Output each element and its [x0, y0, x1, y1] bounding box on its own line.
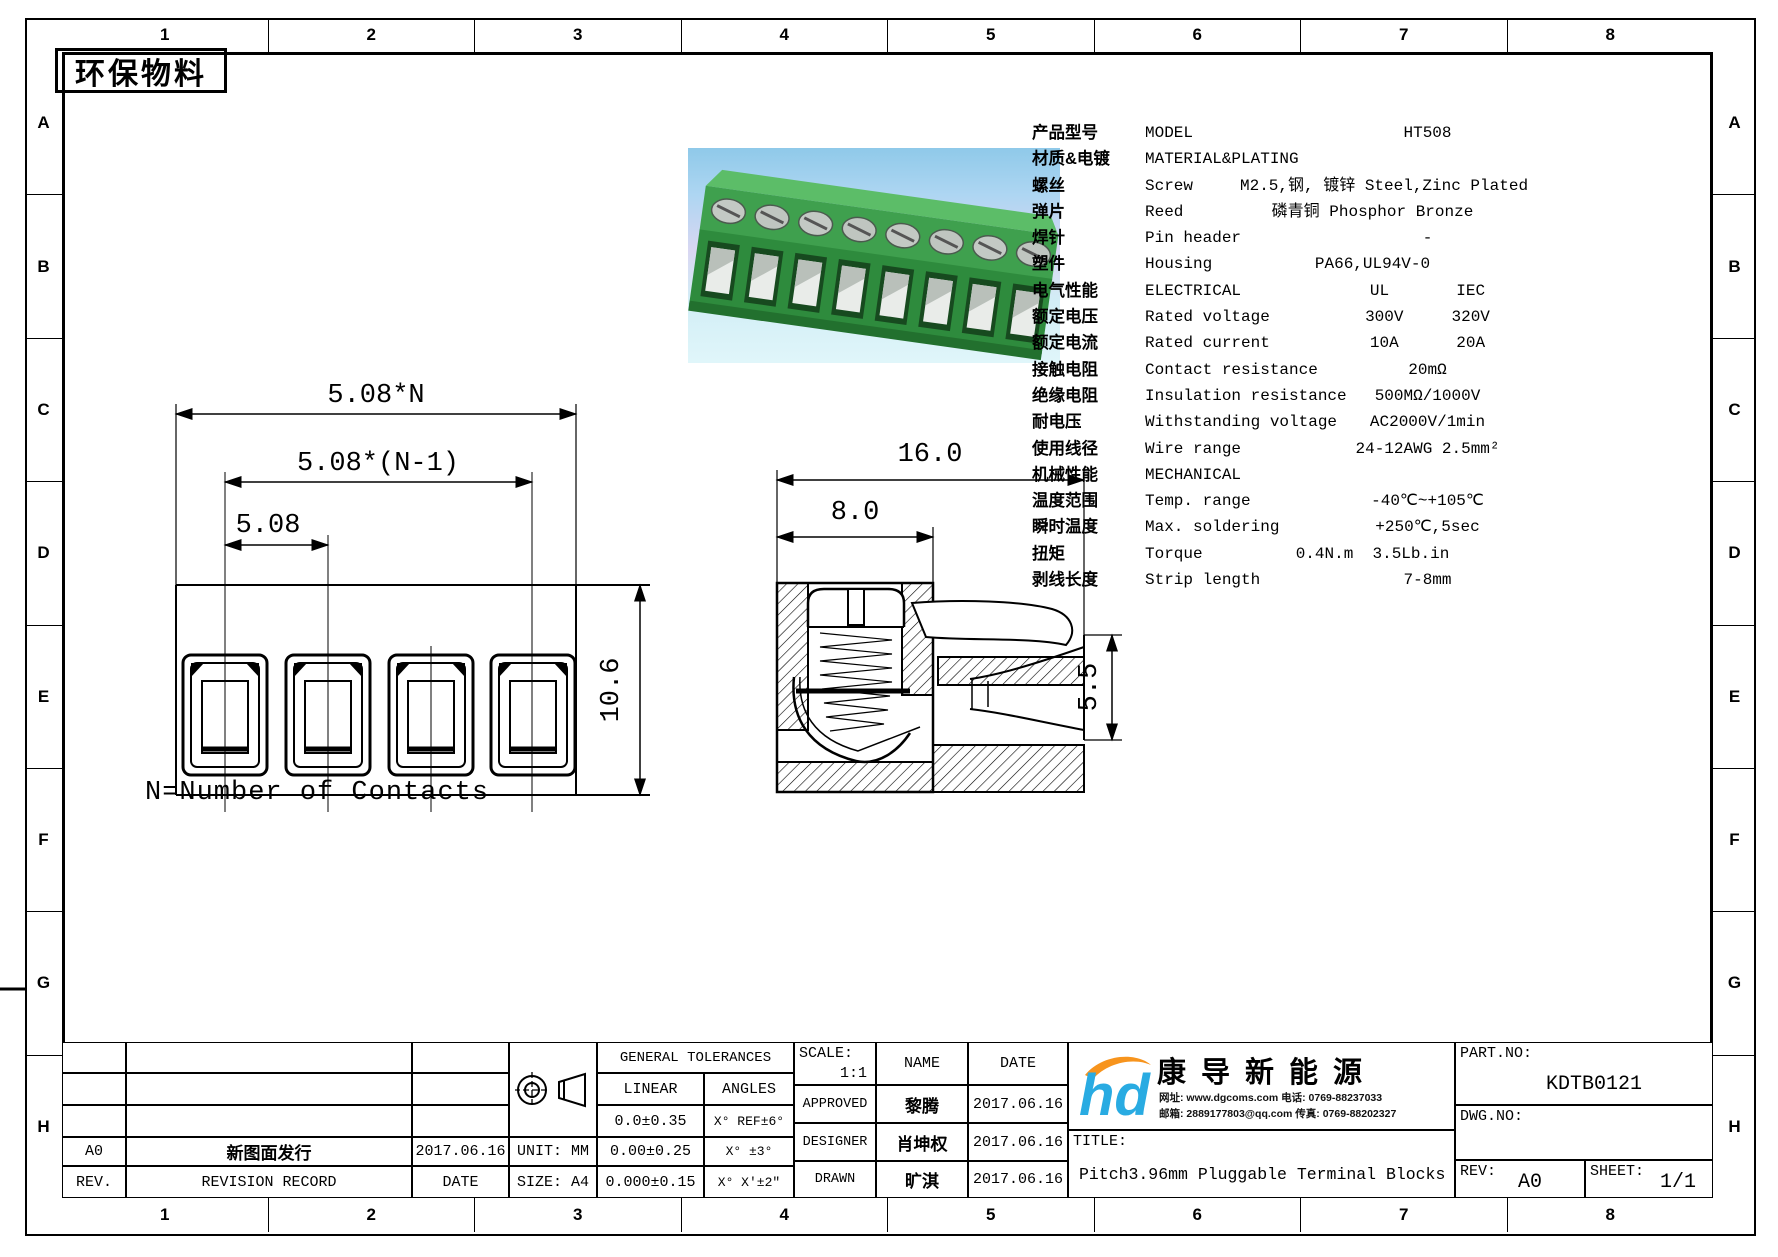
zone-band-left: ABCDEFGH: [25, 52, 62, 1198]
spec-label-cn: 额定电压: [1032, 304, 1145, 330]
tol-linear-3: 0.000±0.15: [597, 1166, 704, 1198]
projection-symbol-cell: [509, 1042, 597, 1137]
spec-label-en: ELECTRICAL: [1145, 278, 1350, 304]
zone-letter: F: [1713, 769, 1756, 912]
company-contact-line2: 邮箱: 2889177803@qq.com 传真: 0769-88202327: [1159, 1106, 1396, 1121]
projection-symbol-icon: [515, 1070, 591, 1110]
drawing-section-view: 16.0 8.0 5.5: [760, 395, 1140, 805]
spec-label-en: MECHANICAL: [1145, 462, 1350, 488]
drawn-name: 旷淇: [876, 1161, 968, 1198]
linear-label: LINEAR: [597, 1073, 704, 1105]
zone-number: 5: [888, 1198, 1095, 1232]
dim-height-label: 10.6: [597, 658, 627, 723]
sheet-value: 1/1: [1660, 1171, 1696, 1194]
spec-value: 0.4N.m 3.5Lb.in: [1240, 541, 1505, 567]
sheet-label: SHEET:: [1590, 1163, 1644, 1180]
dim-width-label: 16.0: [898, 440, 963, 470]
dwg-no-label: DWG.NO:: [1460, 1108, 1523, 1125]
spec-row: 额定电压 Rated voltage 300V 320V: [1032, 304, 1510, 330]
spec-value: +250℃,5sec: [1350, 514, 1505, 540]
part-no-label: PART.NO:: [1460, 1045, 1532, 1062]
company-contact-line1: 网址: www.dgcoms.com 电话: 0769-88237033: [1159, 1090, 1382, 1105]
dim-overall-label: 5.08*N: [327, 381, 424, 411]
spec-value: 磷青铜 Phosphor Bronze: [1240, 199, 1505, 225]
approved-name: 黎腾: [876, 1085, 968, 1123]
spec-value: -: [1350, 225, 1505, 251]
zone-letter: D: [1713, 482, 1756, 625]
spec-row: 接触电阻 Contact resistance 20mΩ: [1032, 357, 1510, 383]
spec-label-en: MODEL: [1145, 120, 1350, 146]
terminal-block-image: [688, 148, 1060, 363]
spec-value: 500MΩ/1000V: [1350, 383, 1505, 409]
zone-number: 3: [475, 1198, 682, 1232]
tol-linear-2: 0.00±0.25: [597, 1137, 704, 1166]
rev-header: REV.: [62, 1166, 126, 1198]
spec-label-en: Strip length: [1145, 567, 1350, 593]
tol-angle-2: X° ±3°: [704, 1137, 794, 1166]
spec-value: UL IEC: [1350, 278, 1505, 304]
spec-label-cn: 额定电流: [1032, 330, 1145, 356]
rev-date-value: 2017.06.16: [412, 1137, 509, 1166]
designer-label: DESIGNER: [794, 1123, 876, 1161]
date-header: DATE: [412, 1166, 509, 1198]
zone-letter: H: [1713, 1056, 1756, 1198]
zone-number: 4: [682, 18, 889, 52]
scale-value: 1:1: [840, 1065, 867, 1082]
record-header: REVISION RECORD: [126, 1166, 412, 1198]
company-name: 康导新能源: [1157, 1049, 1377, 1091]
spec-row: 弹片 Reed 磷青铜 Phosphor Bronze: [1032, 199, 1510, 225]
spec-row: 螺丝 Screw M2.5,钢, 镀锌 Steel,Zinc Plated: [1032, 173, 1510, 199]
tol-angle-1: X° REF±6°: [704, 1105, 794, 1137]
dim-pitch-label: 5.08: [236, 511, 301, 541]
spec-label-cn: 材质&电镀: [1032, 146, 1145, 172]
zone-letter: B: [25, 195, 62, 338]
spec-row: 材质&电镀 MATERIAL&PLATING: [1032, 146, 1510, 172]
spec-value: AC2000V/1min: [1350, 409, 1505, 435]
spec-label-en: Withstanding voltage: [1145, 409, 1350, 435]
spec-row: 电气性能 ELECTRICAL UL IEC: [1032, 278, 1510, 304]
company-cell: hd 康导新能源 网址: www.dgcoms.com 电话: 0769-882…: [1068, 1042, 1455, 1130]
zone-letter: B: [1713, 195, 1756, 338]
spec-value: 7-8mm: [1350, 567, 1505, 593]
zone-letter: E: [1713, 626, 1756, 769]
drawn-label: DRAWN: [794, 1161, 876, 1198]
spec-value: -40℃~+105℃: [1350, 488, 1505, 514]
zone-number: 4: [682, 1198, 889, 1232]
spec-label-cn: 焊针: [1032, 225, 1145, 251]
spec-label-cn: 接触电阻: [1032, 357, 1145, 383]
approved-date: 2017.06.16: [968, 1085, 1068, 1123]
zone-number: 2: [269, 1198, 476, 1232]
part-no-value: KDTB0121: [1546, 1073, 1642, 1096]
spec-label-en: Temp. range: [1145, 488, 1350, 514]
spec-label-en: Contact resistance: [1145, 357, 1350, 383]
product-photo: [688, 148, 1060, 363]
rev-label: REV:: [1460, 1163, 1496, 1180]
spec-row: 产品型号 MODEL HT508: [1032, 120, 1510, 146]
approved-label: APPROVED: [794, 1085, 876, 1123]
zone-band-right: ABCDEFGH: [1713, 52, 1756, 1198]
zone-letter: D: [25, 482, 62, 625]
dwg-no-cell: DWG.NO:: [1455, 1105, 1713, 1160]
designer-name: 肖坤权: [876, 1123, 968, 1161]
logo-text: hd: [1079, 1063, 1151, 1125]
tol-linear-1: 0.0±0.35: [597, 1105, 704, 1137]
unit-cell: UNIT: MM: [509, 1137, 597, 1166]
spec-value: M2.5,钢, 镀锌 Steel,Zinc Plated: [1240, 173, 1505, 199]
zone-number: 8: [1508, 1198, 1714, 1232]
rev-empty-cell: [62, 1105, 126, 1137]
spec-label-cn: 电气性能: [1032, 278, 1145, 304]
zone-number: 5: [888, 18, 1095, 52]
sheet-cell: SHEET: 1/1: [1585, 1160, 1713, 1198]
tol-angle-3: X° X'±2": [704, 1166, 794, 1198]
designer-date: 2017.06.16: [968, 1123, 1068, 1161]
zone-number: 7: [1301, 18, 1508, 52]
company-logo: hd: [1077, 1049, 1157, 1125]
zone-letter: E: [25, 626, 62, 769]
zone-letter: H: [25, 1056, 62, 1198]
zone-number: 1: [62, 1198, 269, 1232]
name-header: NAME: [876, 1042, 968, 1085]
title-label: TITLE:: [1073, 1133, 1127, 1150]
spec-row: 塑件 Housing PA66,UL94V-0: [1032, 251, 1510, 277]
edge-mark: [0, 986, 27, 992]
zone-number: 3: [475, 18, 682, 52]
zone-letter: F: [25, 769, 62, 912]
zone-number: 8: [1508, 18, 1714, 52]
rev-empty-cell: [126, 1042, 412, 1073]
zone-number: 6: [1095, 1198, 1302, 1232]
drawn-date: 2017.06.16: [968, 1161, 1068, 1198]
scale-label: SCALE:: [799, 1045, 853, 1062]
drawing-title: Pitch3.96mm Pluggable Terminal Blocks: [1079, 1165, 1445, 1184]
zone-letter: G: [1713, 912, 1756, 1055]
spec-value: 24-12AWG 2.5mm²: [1350, 436, 1505, 462]
spec-value: 20mΩ: [1350, 357, 1505, 383]
rev-empty-cell: [412, 1073, 509, 1105]
part-no-cell: PART.NO: KDTB0121: [1455, 1042, 1713, 1105]
zone-number: 2: [269, 18, 476, 52]
rev-empty-cell: [412, 1042, 509, 1073]
spec-label-en: Rated current: [1145, 330, 1350, 356]
spec-value: 300V 320V: [1350, 304, 1505, 330]
dim-body-label: 8.0: [831, 498, 880, 528]
zone-number: 6: [1095, 18, 1302, 52]
drawing-sheet: 12345678 12345678 ABCDEFGH ABCDEFGH 环保物料: [0, 0, 1778, 1257]
zone-letter: G: [25, 912, 62, 1055]
spec-value: 10A 20A: [1350, 330, 1505, 356]
zone-letter: C: [25, 339, 62, 482]
zone-number: 1: [62, 18, 269, 52]
spec-label-en: Insulation resistance: [1145, 383, 1350, 409]
spec-label-en: Pin header: [1145, 225, 1350, 251]
rev-empty-cell: [126, 1105, 412, 1137]
zone-band-top: 12345678: [62, 18, 1713, 52]
spec-row: 额定电流 Rated current 10A 20A: [1032, 330, 1510, 356]
drawing-front-view: 5.08*N 5.08*(N-1) 5.08: [140, 350, 660, 840]
dim-span-label: 5.08*(N-1): [297, 449, 459, 479]
spec-label-cn: 弹片: [1032, 199, 1145, 225]
rev-empty-cell: [412, 1105, 509, 1137]
spec-label-en: MATERIAL&PLATING: [1145, 146, 1350, 172]
title-cell: TITLE: Pitch3.96mm Pluggable Terminal Bl…: [1068, 1130, 1455, 1198]
zone-number: 7: [1301, 1198, 1508, 1232]
spec-value: [1350, 146, 1505, 172]
tolerances-header: GENERAL TOLERANCES: [597, 1042, 794, 1073]
dim-opening-label: 5.5: [1075, 663, 1105, 712]
eco-material-label: 环保物料: [55, 48, 227, 93]
scale-cell: SCALE: 1:1: [794, 1042, 876, 1085]
spec-label-cn: 螺丝: [1032, 173, 1145, 199]
rev-value: A0: [62, 1137, 126, 1166]
rev-empty-cell: [62, 1042, 126, 1073]
zone-letter: A: [1713, 52, 1756, 195]
angles-label: ANGLES: [704, 1073, 794, 1105]
rev-empty-cell: [62, 1073, 126, 1105]
size-cell: SIZE: A4: [509, 1166, 597, 1198]
rev-empty-cell: [126, 1073, 412, 1105]
rev-value-2: A0: [1518, 1171, 1542, 1194]
title-block: A0 新图面发行 2017.06.16 REV. REVISION RECORD…: [62, 1042, 1713, 1198]
spec-row: 焊针 Pin header -: [1032, 225, 1510, 251]
rev-cell: REV: A0: [1455, 1160, 1585, 1198]
zone-letter: C: [1713, 339, 1756, 482]
spec-label-en: Wire range: [1145, 436, 1350, 462]
spec-label-cn: 塑件: [1032, 251, 1145, 277]
rev-record-value: 新图面发行: [126, 1137, 412, 1166]
contacts-note: N=Number of Contacts: [145, 778, 489, 808]
date-header-2: DATE: [968, 1042, 1068, 1085]
spec-value: HT508: [1350, 120, 1505, 146]
spec-label-en: Max. soldering: [1145, 514, 1350, 540]
spec-label-cn: 产品型号: [1032, 120, 1145, 146]
spec-value: PA66,UL94V-0: [1240, 251, 1505, 277]
zone-band-bottom: 12345678: [62, 1198, 1713, 1232]
spec-value: [1350, 462, 1505, 488]
spec-label-en: Rated voltage: [1145, 304, 1350, 330]
